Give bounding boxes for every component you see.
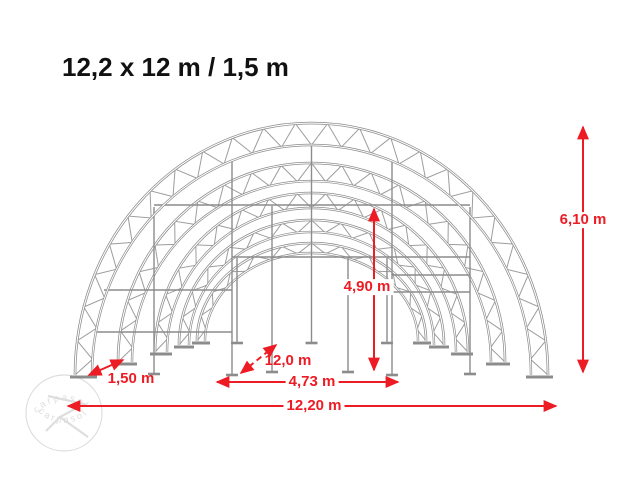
dimension-label-clear-height: 4,90 m	[341, 279, 394, 295]
dimension-label-door-width: 4,73 m	[286, 374, 339, 390]
dimension-label-total-height: 6,10 m	[557, 212, 610, 228]
tent-dimension-diagram: carpasol carpasol 12,2 x 12 m / 1,5 m 6,…	[0, 0, 639, 479]
tent-structure	[70, 123, 553, 377]
dimension-label-total-width: 12,20 m	[283, 398, 344, 414]
dimension-label-depth: 12,0 m	[265, 353, 312, 369]
dimension-label-arch-spacing: 1,50 m	[108, 371, 155, 387]
watermark-logo: carpasol carpasol	[26, 375, 102, 451]
page-title: 12,2 x 12 m / 1,5 m	[62, 52, 289, 83]
